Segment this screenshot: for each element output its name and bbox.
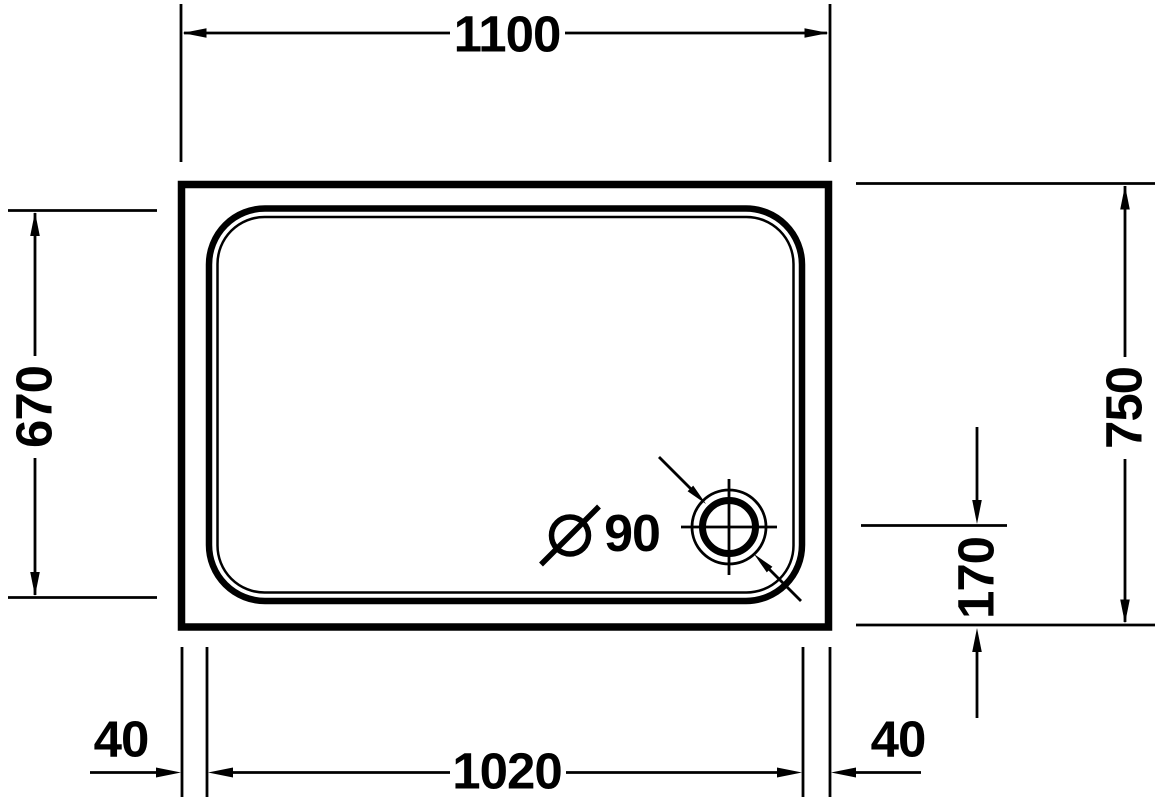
outer-depth-value: 750 (1096, 367, 1153, 449)
drain-diameter-value: 90 (604, 505, 660, 563)
dimension-inner-depth: 670 (6, 211, 158, 598)
arrowhead-up-icon (30, 212, 40, 236)
inner-width-value: 1020 (452, 743, 561, 800)
rim-right-value: 40 (871, 711, 926, 768)
arrowhead-left-icon (208, 768, 233, 778)
arrowhead-down-icon (30, 572, 40, 596)
diameter-symbol-icon (541, 507, 599, 565)
drain-diameter-label: 90 (541, 505, 660, 565)
rim-left-value: 40 (94, 711, 149, 768)
dimension-inner-width: 1020 (208, 743, 802, 800)
tray-basin-rim-outer (209, 209, 802, 602)
arrowhead-left-icon (183, 28, 207, 38)
dimension-bottom-row: 40 1020 40 (90, 647, 925, 800)
tray-outline (182, 185, 829, 628)
drain-offset-value: 170 (948, 537, 1005, 619)
dimension-rim-right: 40 (831, 711, 925, 778)
leader-line (659, 457, 692, 490)
dimension-rim-left: 40 (90, 711, 181, 778)
technical-drawing-canvas: 90 1100 670 750 170 (0, 0, 1158, 804)
dimension-outer-width: 1100 (181, 4, 830, 162)
tray-outer-edge (182, 185, 829, 628)
arrowhead-right-icon (156, 768, 181, 778)
dimension-drain-offset: 170 (861, 427, 1007, 718)
arrowhead-down-icon (972, 500, 982, 524)
arrowhead-up-icon (972, 628, 982, 652)
arrowhead-up-icon (1120, 186, 1130, 210)
arrowhead-right-icon (805, 28, 829, 38)
outer-width-value: 1100 (454, 6, 561, 63)
inner-depth-value: 670 (6, 366, 63, 448)
drain-leader-arrow-top (659, 457, 706, 504)
dimension-outer-depth: 750 (856, 184, 1155, 626)
arrowhead-left-icon (831, 768, 856, 778)
drain: 90 (541, 457, 801, 601)
arrowhead-down-icon (1120, 600, 1130, 624)
arrowhead-right-icon (777, 768, 802, 778)
technical-drawing-page: 90 1100 670 750 170 (0, 0, 1158, 804)
